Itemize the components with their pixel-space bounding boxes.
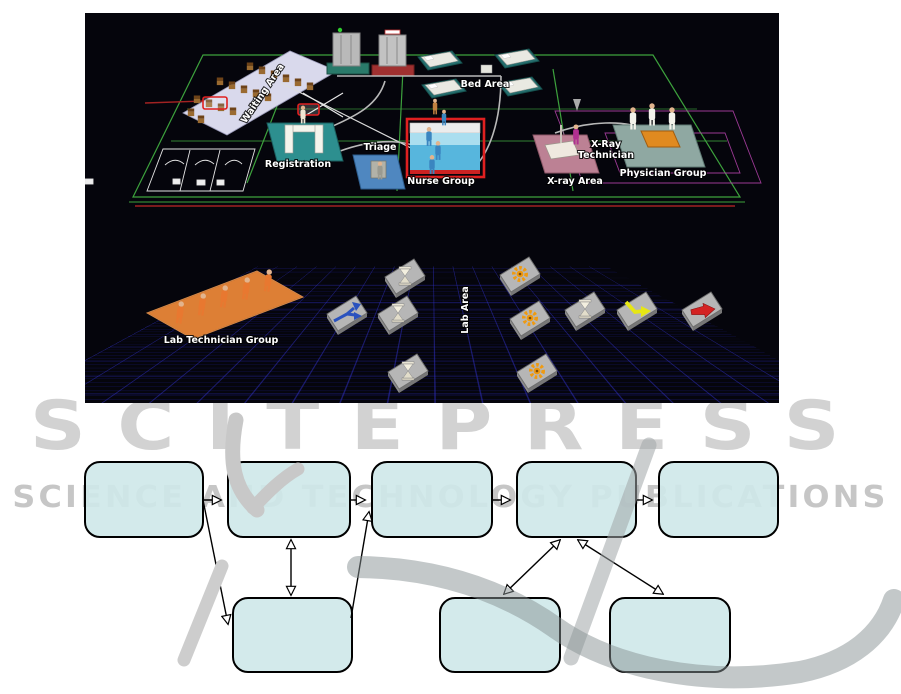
label-xray-area: X-ray Area bbox=[547, 176, 603, 187]
flow-box-1 bbox=[85, 462, 203, 537]
label-lab-technician-group: Lab Technician Group bbox=[164, 335, 279, 346]
gear-icon bbox=[510, 301, 550, 340]
label-lab-area: Lab Area bbox=[460, 286, 471, 333]
triage-station bbox=[353, 155, 405, 189]
label-triage: Triage bbox=[363, 142, 396, 153]
floorplan: Waiting Area Registration Triage Nurse G… bbox=[85, 13, 779, 403]
flow-box-5 bbox=[659, 462, 778, 537]
label-physician-group: Physician Group bbox=[620, 168, 707, 179]
flow-box-6 bbox=[233, 598, 352, 672]
label-bed-area: Bed Area bbox=[461, 79, 510, 90]
nurse-group-station bbox=[407, 99, 484, 177]
flow-box-3 bbox=[372, 462, 492, 537]
hourglass-icon bbox=[565, 292, 605, 331]
simulation-screenshot: Waiting Area Registration Triage Nurse G… bbox=[85, 13, 779, 403]
label-nurse-group: Nurse Group bbox=[407, 176, 475, 187]
hourglass-icon bbox=[378, 296, 418, 335]
entrance-doors bbox=[327, 28, 414, 76]
branch-arrow-icon bbox=[327, 296, 367, 335]
gear-icon bbox=[500, 257, 540, 296]
bed-area bbox=[418, 49, 542, 98]
registration-station bbox=[267, 106, 343, 161]
label-xray-technician-1: X-Ray bbox=[591, 139, 622, 150]
arrow-4-7-bidir bbox=[504, 540, 560, 594]
hourglass-icon bbox=[388, 354, 428, 393]
lab-technician-station bbox=[147, 269, 303, 339]
flowchart bbox=[0, 405, 901, 694]
label-xray-technician-2: Technician bbox=[578, 150, 634, 161]
bent-arrow-icon bbox=[617, 292, 657, 331]
straight-arrow-icon bbox=[682, 292, 722, 331]
icon-tiles bbox=[327, 257, 722, 393]
xray-station bbox=[533, 99, 599, 173]
hourglass-icon bbox=[385, 259, 425, 298]
gear-icon bbox=[517, 354, 557, 393]
label-registration: Registration bbox=[265, 159, 331, 170]
figure-page: SCITEPRESS SCIENCE AND TECHNOLOGY PUBLIC… bbox=[0, 0, 901, 694]
restroom-stalls bbox=[85, 149, 255, 191]
